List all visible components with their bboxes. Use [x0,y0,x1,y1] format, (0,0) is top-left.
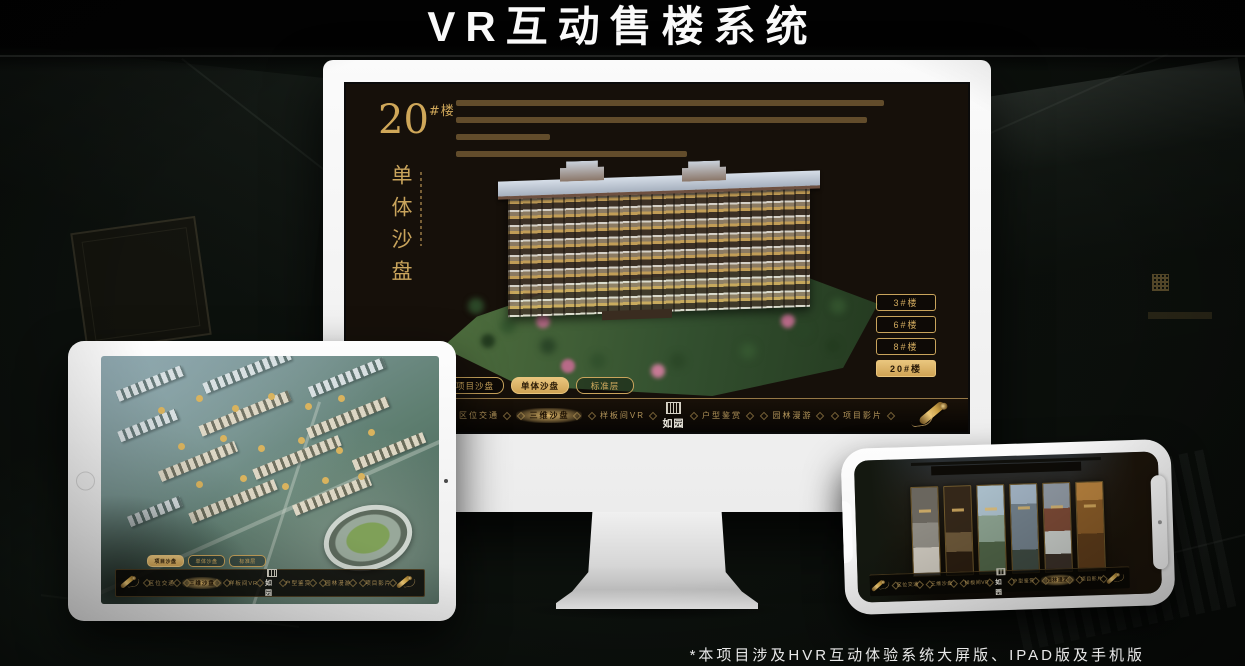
gate-roof [931,462,1081,476]
phone-side-pill [1150,475,1168,569]
seal-icon [666,402,681,414]
brand-logo-text: 如园 [995,576,1007,596]
building-facade [508,185,810,318]
background-qr-mark [1152,274,1169,291]
sandbox-mode-tabs: 项目沙盘 单体沙盘 标准层 [446,377,634,394]
building-selector: 3#楼 6#楼 8#楼 20#楼 [876,294,936,377]
tablet-sandbox-tabs: 项目沙盘 单体沙盘 标准层 [147,555,266,567]
background-photo-left [0,43,335,378]
phone-device: 区位交通 三维沙盘 样板间VR 如园 户型鉴赏 园林漫游 项目影片 [840,439,1175,615]
scroll-icon[interactable] [126,576,137,589]
phone-notch [842,501,853,563]
description-line [456,134,550,140]
building-title: 20#楼 [378,100,455,140]
building-button-3[interactable]: 3#楼 [876,294,936,311]
nav-item-3d-sandbox[interactable]: 三维沙盘 [925,578,959,590]
nav-item-project-film[interactable]: 项目影片 [1075,573,1109,585]
nav-item-floorplan-gallery[interactable]: 户型鉴赏 [1007,575,1041,587]
roof-gable [682,160,726,182]
trees-decoration [442,150,454,162]
building-3d-render[interactable] [442,150,878,400]
tablet-tab-project-sandbox[interactable]: 项目沙盘 [147,555,184,567]
building-number-badges [101,356,106,361]
scene-panel-model[interactable] [943,485,974,576]
building-number: 20 [378,97,429,143]
scroll-icon[interactable] [403,576,414,589]
seal-icon [267,569,277,577]
background-photo-right [956,57,1245,363]
tab-single-building-sandbox[interactable]: 单体沙盘 [511,377,569,394]
nav-item-floorplan-gallery[interactable]: 户型鉴赏 [278,577,318,589]
monitor-stand [556,512,758,609]
nav-item-3d-sandbox[interactable]: 三维沙盘 [182,577,222,589]
scene-panel-garden[interactable] [976,484,1007,575]
brand-logo-text: 如园 [663,415,685,430]
background-plaque [70,216,211,352]
nav-item-garden-roam[interactable]: 园林漫游 [759,408,825,423]
scroll-icon[interactable] [1113,573,1121,584]
tablet-tab-single-building[interactable]: 单体沙盘 [188,555,225,567]
scene-panel-study[interactable] [1075,481,1106,572]
nav-item-showroom-vr[interactable]: 样板间VR [959,576,996,588]
tablet-screen: 项目沙盘 单体沙盘 标准层 区位交通 三维沙盘 样板间VR 如园 户型鉴赏 园林… [101,356,439,604]
nav-item-project-film[interactable]: 项目影片 [830,408,896,423]
background-gold-logo-strip [1148,312,1212,319]
poster-footnote: *本项目涉及HVR互动体验系统大屏版、IPAD版及手机版 [690,644,1145,665]
building-row [198,390,291,436]
poster-title: VR互动售楼系统 [0,0,1245,56]
description-line [456,100,884,106]
tablet-bottom-nav: 区位交通 三维沙盘 样板间VR 如园 户型鉴赏 园林漫游 项目影片 [115,569,425,597]
brand-logo: 如园 [265,569,278,598]
building-row [115,365,184,401]
brand-logo: 如园 [995,568,1007,596]
tablet-device: 项目沙盘 单体沙盘 标准层 区位交通 三维沙盘 样板间VR 如园 户型鉴赏 园林… [68,341,456,621]
description-line [456,117,867,123]
tab-standard-floor[interactable]: 标准层 [576,377,634,394]
nav-item-3d-sandbox[interactable]: 三维沙盘 [516,408,582,423]
nav-item-showroom-vr[interactable]: 样板间VR [587,408,658,423]
building-button-6[interactable]: 6#楼 [876,316,936,333]
phone-camera-dot [1157,520,1161,524]
phone-screen: 区位交通 三维沙盘 样板间VR 如园 户型鉴赏 园林漫游 项目影片 [854,451,1162,602]
poster-stage: 20#楼 单体沙盘 3#楼 6#楼 8# [0,0,1245,666]
building-row [158,441,238,482]
building-subtitle-vertical: 单体沙盘 [386,164,416,334]
subtitle-decoration [420,172,422,246]
roof-gable [560,160,604,182]
tablet-tab-standard-floor[interactable]: 标准层 [229,555,266,567]
nav-item-showroom-vr[interactable]: 样板间VR [222,577,265,589]
seal-icon [996,568,1005,575]
scroll-icon[interactable] [878,580,886,591]
building-row [308,357,386,397]
scene-panels [910,481,1106,577]
scene-panel-courtyard[interactable] [1042,482,1073,573]
nav-item-location-traffic[interactable]: 区位交通 [891,579,925,591]
scene-panel-building[interactable] [1009,483,1040,574]
building-row [202,356,291,394]
brand-logo: 如园 [663,402,685,430]
building-number-suffix: #楼 [429,104,455,119]
scroll-icon[interactable] [910,403,950,431]
nav-item-garden-roam[interactable]: 园林漫游 [1041,574,1075,586]
building-button-20-selected[interactable]: 20#楼 [876,360,936,377]
scene-panel-interior[interactable] [910,486,941,577]
building-row [117,409,179,442]
brand-logo-text: 如园 [265,578,278,598]
building-button-8[interactable]: 8#楼 [876,338,936,355]
nav-item-floorplan-gallery[interactable]: 户型鉴赏 [689,408,755,423]
nav-item-location-traffic[interactable]: 区位交通 [142,577,182,589]
tablet-home-button[interactable] [76,472,95,491]
tablet-camera-dot [444,479,448,483]
nav-item-garden-roam[interactable]: 园林漫游 [318,577,358,589]
nav-item-project-film[interactable]: 项目影片 [358,577,398,589]
